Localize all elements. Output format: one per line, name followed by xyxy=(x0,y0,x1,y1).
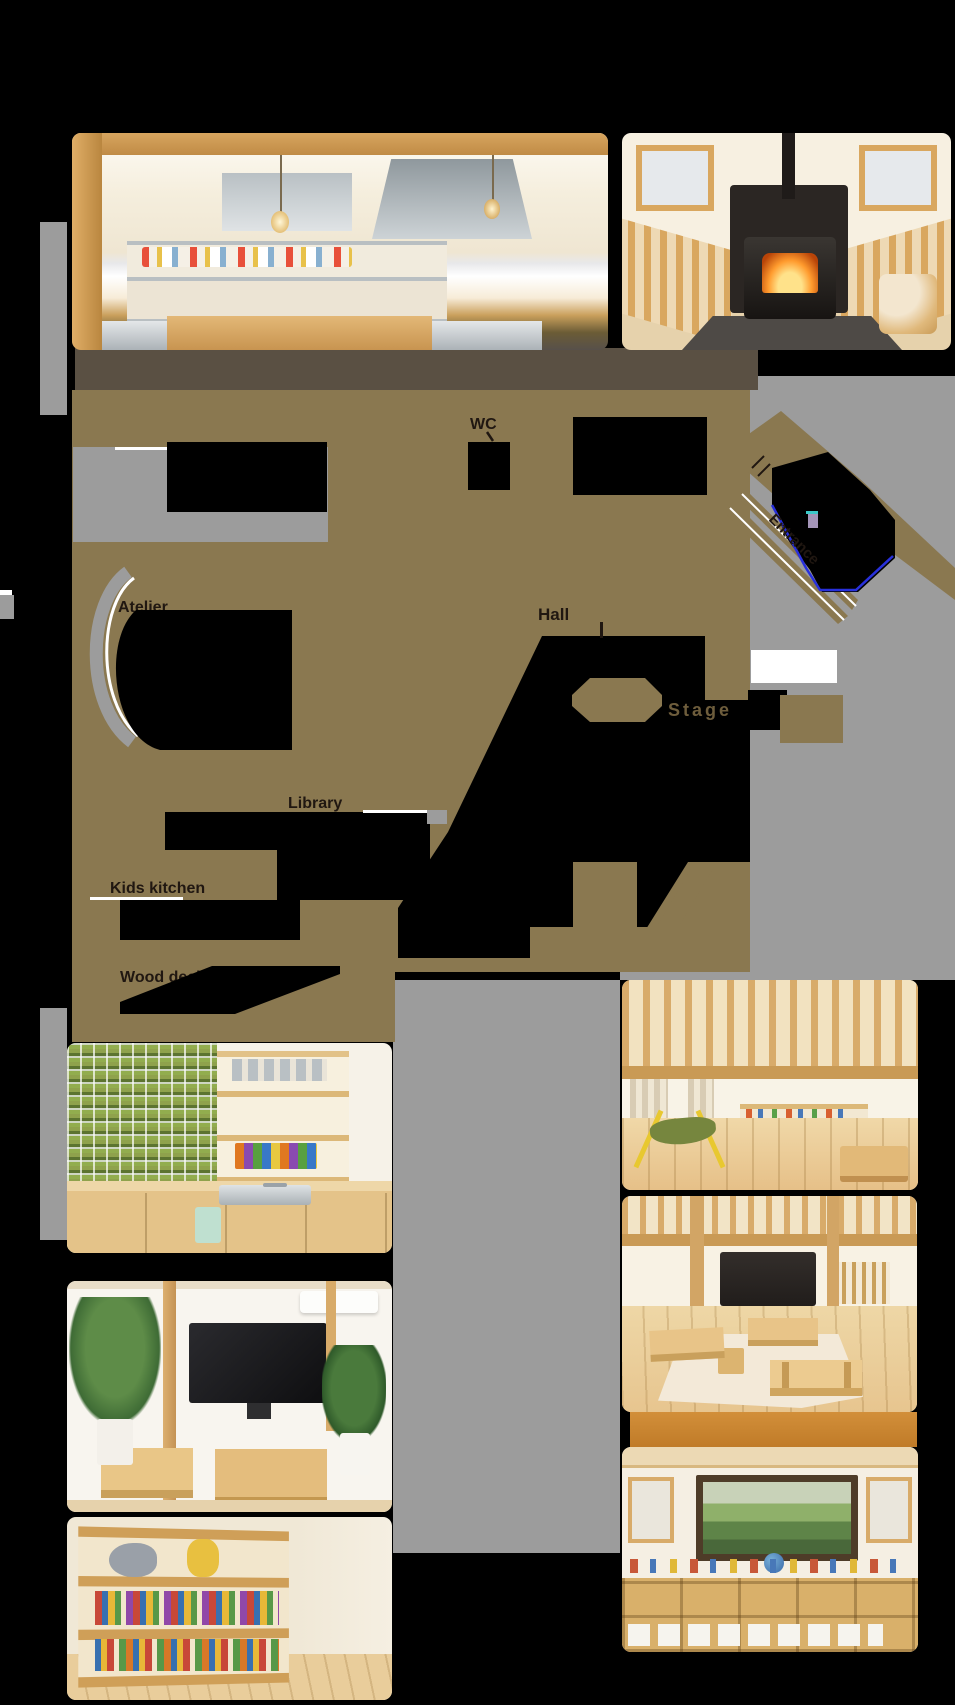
tv-room-photo xyxy=(67,1281,392,1512)
kids-kitchen-leader-line xyxy=(90,897,183,900)
loft-railing xyxy=(622,980,918,1070)
label-library: Library xyxy=(288,795,342,812)
firewood-sack xyxy=(879,274,937,334)
air-conditioner xyxy=(300,1291,378,1313)
stuffed-animal xyxy=(109,1543,157,1577)
label-kids-kitchen: Kids kitchen xyxy=(110,880,205,897)
stage-platform xyxy=(751,650,837,683)
page-canvas: Atelier Wood deck WC H xyxy=(0,0,955,1705)
label-wc: WC xyxy=(470,416,497,433)
main-kitchen-photo xyxy=(72,133,608,350)
picture-book-shelf-photo xyxy=(67,1517,392,1700)
pendant-light xyxy=(271,211,289,233)
plan-shadow-bottomleft xyxy=(40,1008,67,1240)
wood-stove-photo xyxy=(622,133,951,350)
plan-top-wall xyxy=(75,348,758,390)
wc-room-cutout xyxy=(468,442,510,490)
orange-divider xyxy=(630,1412,917,1447)
colorful-cups xyxy=(235,1143,317,1169)
kids-kitchen-photo xyxy=(67,1043,392,1253)
piano xyxy=(720,1252,816,1306)
pendant-light xyxy=(484,199,500,219)
plan-shadow-center xyxy=(393,980,620,1553)
kitchen-leader-line xyxy=(115,447,167,450)
atelier-room-cutout xyxy=(116,610,292,750)
plan-shadow-topleft xyxy=(40,222,67,415)
television xyxy=(189,1323,327,1403)
hammock-playroom-photo xyxy=(622,980,918,1190)
label-stage: Stage xyxy=(668,700,732,720)
stuffed-animal xyxy=(187,1539,219,1577)
hall-center-octagon xyxy=(572,678,662,722)
potted-plant xyxy=(69,1297,161,1425)
fire-window xyxy=(762,253,818,293)
range-hood xyxy=(372,159,532,239)
staff-room-cutout xyxy=(573,417,707,495)
loft-railing xyxy=(622,1196,917,1236)
landscape-painting xyxy=(696,1475,858,1561)
hall-leader-line xyxy=(600,622,603,638)
book-spines xyxy=(95,1639,279,1671)
library-leader-line xyxy=(363,810,427,813)
label-hall: Hall xyxy=(538,605,569,624)
toy-shelves-photo xyxy=(622,1447,918,1652)
tables-classroom-photo xyxy=(622,1196,917,1412)
kitchen-room-cutout xyxy=(167,442,327,512)
book-spines xyxy=(95,1591,279,1625)
potted-plant xyxy=(322,1345,386,1441)
sink xyxy=(219,1185,311,1205)
